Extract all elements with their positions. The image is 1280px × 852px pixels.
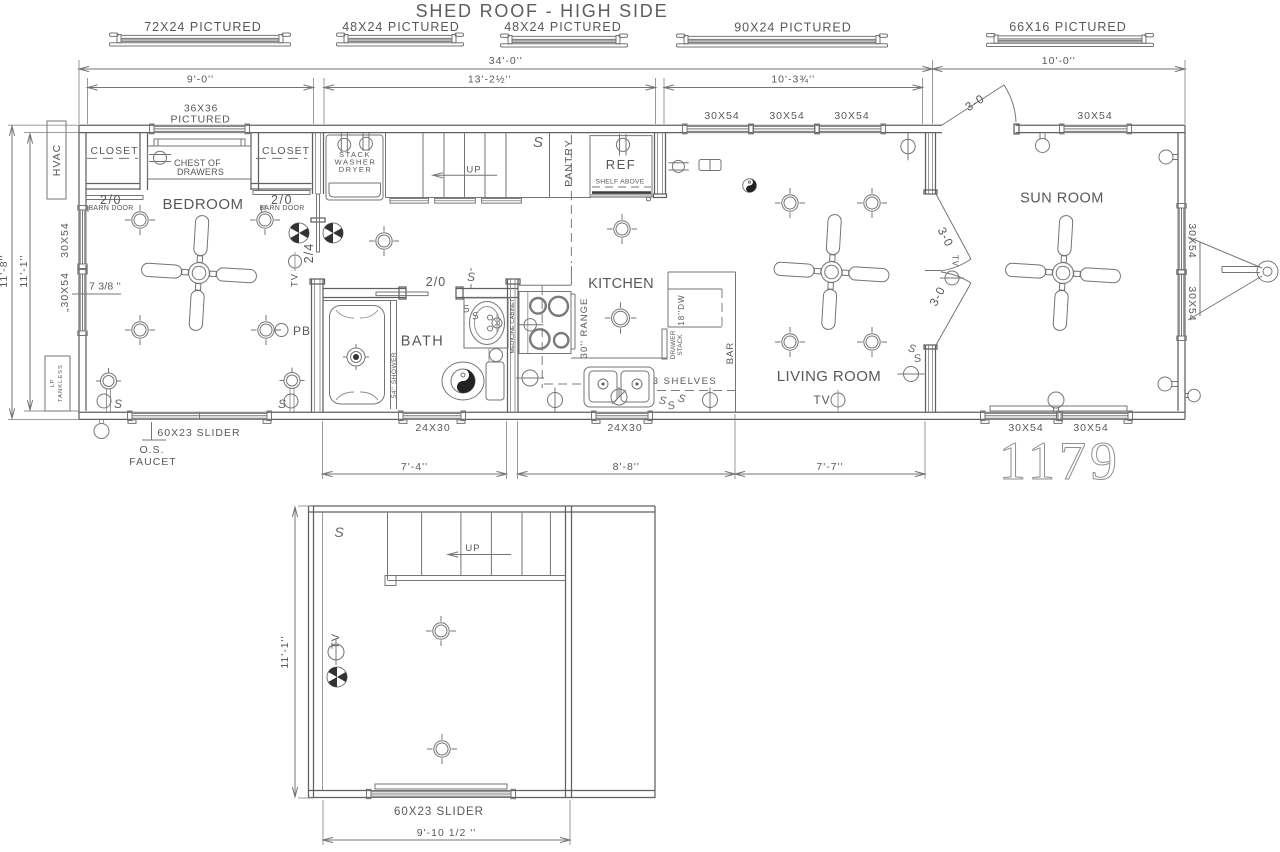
svg-text:60X23 SLIDER: 60X23 SLIDER [157, 427, 240, 439]
svg-text:10'-0'': 10'-0'' [1042, 55, 1076, 67]
svg-text:34'-0'': 34'-0'' [489, 55, 523, 67]
svg-text:HVAC: HVAC [51, 144, 63, 176]
svg-text:FAUCET: FAUCET [129, 456, 176, 468]
svg-text:BARN DOOR: BARN DOOR [259, 205, 304, 212]
svg-text:CLOSET: CLOSET [90, 145, 138, 157]
svg-text:BATH: BATH [401, 334, 445, 350]
svg-text:72X24 PICTURED: 72X24 PICTURED [144, 20, 262, 34]
svg-text:UP: UP [465, 543, 480, 554]
svg-text:48X24 PICTURED: 48X24 PICTURED [342, 20, 460, 34]
svg-text:3 SHELVES: 3 SHELVES [653, 376, 718, 387]
svg-text:SHED ROOF - HIGH SIDE: SHED ROOF - HIGH SIDE [416, 1, 669, 21]
svg-text:90X24 PICTURED: 90X24 PICTURED [734, 21, 852, 35]
svg-text:S: S [467, 270, 475, 284]
svg-text:SUN ROOM: SUN ROOM [1020, 191, 1104, 207]
svg-text:„30X54: „30X54 [59, 272, 71, 312]
svg-text:BEDROOM: BEDROOM [162, 196, 243, 213]
svg-text:54'' SHOWER: 54'' SHOWER [391, 352, 398, 398]
svg-text:13'-2½'': 13'-2½'' [468, 74, 512, 86]
svg-text:BARN DOOR: BARN DOOR [88, 205, 133, 212]
svg-text:UP: UP [466, 165, 481, 176]
svg-text:30X54: 30X54 [1186, 286, 1198, 321]
svg-text:2/0: 2/0 [426, 275, 446, 289]
svg-text:MEDICINE CABINET: MEDICINE CABINET [510, 298, 516, 354]
svg-text:30X54: 30X54 [769, 110, 804, 122]
svg-text:24X30: 24X30 [607, 422, 642, 434]
svg-text:7 3/8 '': 7 3/8 '' [89, 281, 121, 293]
svg-text:BAR: BAR [725, 342, 736, 365]
svg-text:S: S [278, 397, 286, 411]
svg-text:DRAWERS: DRAWERS [177, 167, 224, 177]
svg-text:18''DW: 18''DW [677, 294, 686, 325]
svg-text:TV: TV [951, 255, 960, 267]
svg-text:SHELF ABOVE: SHELF ABOVE [595, 179, 644, 186]
svg-text:REF: REF [606, 157, 637, 172]
svg-text:TV: TV [290, 273, 301, 287]
svg-text:LIVING ROOM: LIVING ROOM [777, 368, 881, 385]
svg-text:PB: PB [293, 324, 311, 338]
svg-text:66X16 PICTURED: 66X16 PICTURED [1009, 20, 1127, 34]
svg-text:30X54: 30X54 [704, 110, 739, 122]
svg-text:60X23 SLIDER: 60X23 SLIDER [394, 806, 484, 818]
svg-text:TV: TV [813, 393, 830, 407]
svg-text:O.S.: O.S. [139, 444, 164, 456]
svg-text:S: S [533, 134, 543, 151]
svg-text:CLOSET: CLOSET [262, 145, 310, 157]
svg-text:S: S [334, 524, 344, 540]
svg-text:STACK: STACK [677, 334, 684, 356]
svg-text:7'-7'': 7'-7'' [816, 461, 843, 473]
svg-text:DRAWER: DRAWER [670, 330, 677, 359]
svg-text:S: S [114, 397, 122, 411]
svg-text:PANTRY: PANTRY [563, 139, 575, 187]
svg-text:30'' RANGE: 30'' RANGE [579, 298, 590, 359]
svg-text:DRYER: DRYER [339, 165, 373, 174]
svg-text:9'-0'': 9'-0'' [187, 74, 214, 86]
svg-text:LP: LP [50, 378, 56, 387]
svg-text:11'-1'': 11'-1'' [279, 635, 291, 668]
svg-text:10'-3¾'': 10'-3¾'' [771, 74, 815, 86]
svg-text:30X54: 30X54 [1186, 223, 1198, 258]
svg-text:30X54: 30X54 [59, 222, 71, 257]
svg-text:1179: 1179 [999, 431, 1121, 491]
svg-text:11'-8'': 11'-8'' [0, 254, 10, 287]
svg-text:9'-10 1/2 '': 9'-10 1/2 '' [417, 827, 476, 839]
svg-text:TANKLESS: TANKLESS [58, 364, 64, 402]
svg-text:8'-8'': 8'-8'' [613, 461, 640, 473]
svg-text:24X30: 24X30 [415, 422, 450, 434]
svg-text:30X54: 30X54 [1077, 110, 1112, 122]
svg-text:30X54: 30X54 [834, 110, 869, 122]
svg-text:48X24 PICTURED: 48X24 PICTURED [504, 20, 622, 34]
svg-text:2/4: 2/4 [302, 243, 316, 263]
svg-text:7'-4'': 7'-4'' [401, 461, 428, 473]
svg-text:11'-1'': 11'-1'' [18, 254, 30, 287]
svg-text:KITCHEN: KITCHEN [588, 276, 654, 292]
svg-text:PICTURED: PICTURED [170, 114, 230, 126]
